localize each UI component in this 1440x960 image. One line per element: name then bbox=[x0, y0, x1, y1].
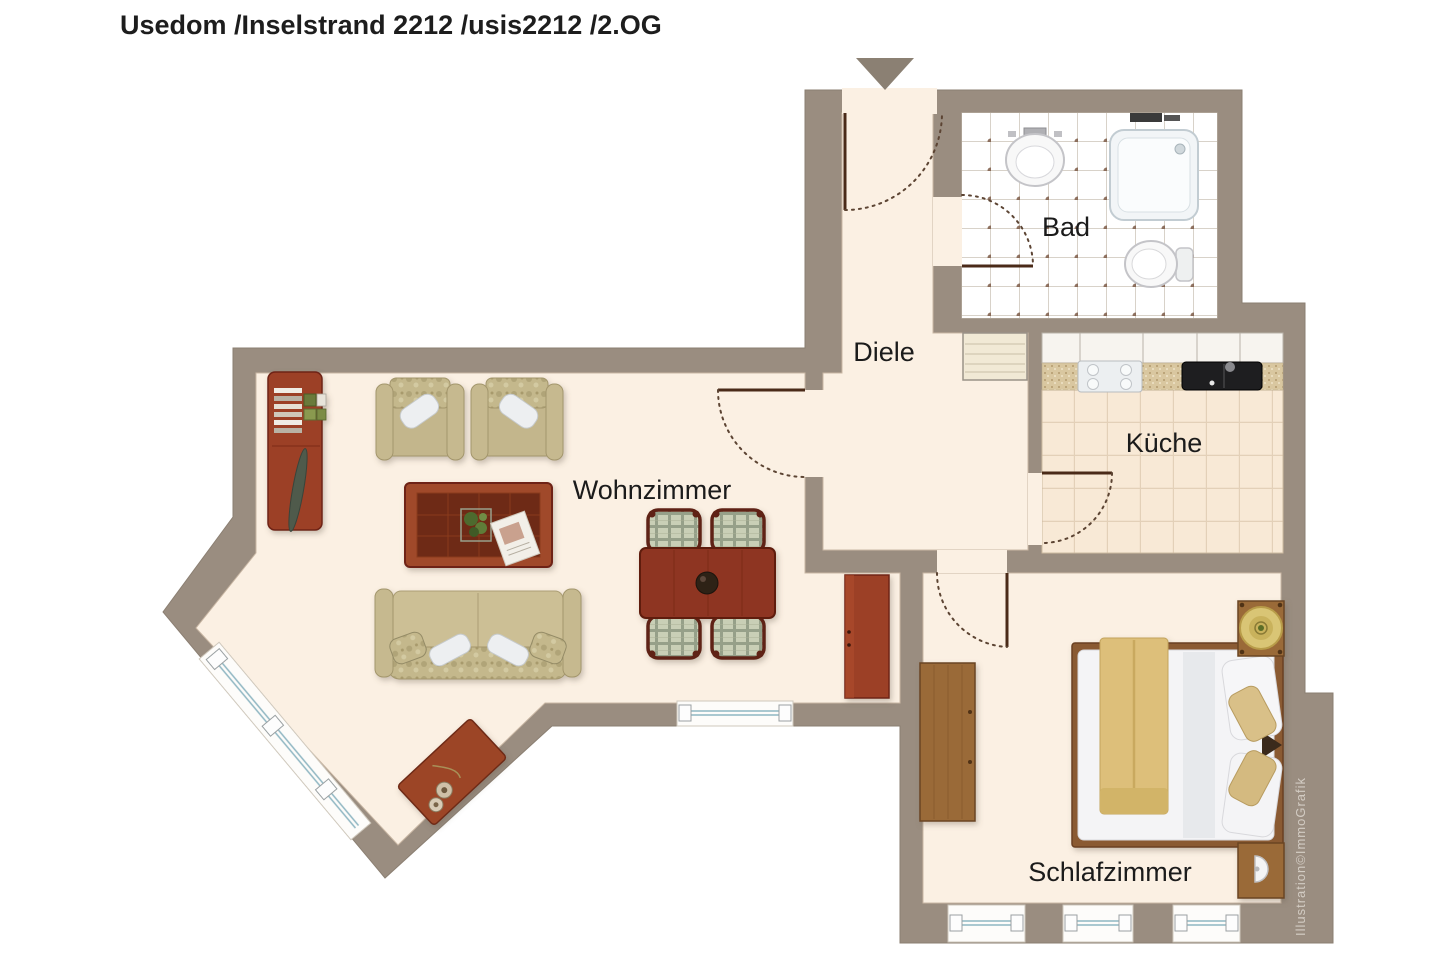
blanket bbox=[1100, 638, 1168, 814]
schlafzimmer-window-1 bbox=[948, 905, 1025, 942]
coffee-table bbox=[405, 483, 552, 567]
room-label-kueche: Küche bbox=[1126, 428, 1203, 458]
floorplan-drawing: Diele Bad Küche Wohnzimmer Schlafzimmer … bbox=[0, 0, 1440, 960]
bowl-icon bbox=[696, 572, 718, 594]
shower-icon bbox=[1110, 113, 1198, 220]
room-label-diele: Diele bbox=[853, 337, 915, 367]
armchair-left bbox=[376, 378, 464, 460]
toilet-icon bbox=[1125, 241, 1193, 287]
watermark: Illustration©ImmoGrafik bbox=[1293, 777, 1308, 936]
hall-shelf bbox=[963, 333, 1027, 380]
wohnzimmer-window bbox=[677, 701, 793, 726]
nightstand-bottom bbox=[1238, 843, 1284, 898]
dining-chair bbox=[648, 616, 700, 658]
dining-table bbox=[640, 548, 775, 618]
room-label-bad: Bad bbox=[1042, 212, 1090, 242]
room-label-wohnzimmer: Wohnzimmer bbox=[573, 475, 732, 505]
tall-cabinet bbox=[845, 575, 889, 698]
dining-chair bbox=[648, 510, 700, 552]
armchair-right bbox=[471, 378, 563, 460]
nightstand-top bbox=[1238, 601, 1284, 656]
round-lamp-icon bbox=[1240, 607, 1282, 649]
sofa bbox=[375, 589, 581, 679]
entrance-opening bbox=[842, 88, 937, 114]
sink-icon bbox=[1006, 128, 1064, 186]
sideboard-shelf bbox=[268, 372, 326, 532]
kitchen-counter-block bbox=[1042, 333, 1283, 392]
dining-chair bbox=[712, 510, 764, 552]
dining-chair bbox=[712, 616, 764, 658]
room-label-schlafzimmer: Schlafzimmer bbox=[1028, 857, 1192, 887]
stove-icon bbox=[1078, 361, 1142, 392]
schlafzimmer-window-3 bbox=[1173, 905, 1240, 942]
bedroom-desk bbox=[920, 663, 975, 821]
schlafzimmer-door-opening bbox=[937, 550, 1007, 573]
schlafzimmer-window-2 bbox=[1063, 905, 1133, 942]
kueche-door-opening bbox=[1028, 473, 1042, 545]
entrance-arrow-icon bbox=[856, 58, 914, 90]
double-bed bbox=[1072, 638, 1283, 847]
bad-door-opening bbox=[933, 197, 962, 266]
kitchen-sink-icon bbox=[1182, 362, 1262, 390]
floorplan-page: Usedom /Inselstrand 2212 /usis2212 /2.OG bbox=[0, 0, 1440, 960]
wohnzimmer-door-opening bbox=[803, 390, 825, 477]
